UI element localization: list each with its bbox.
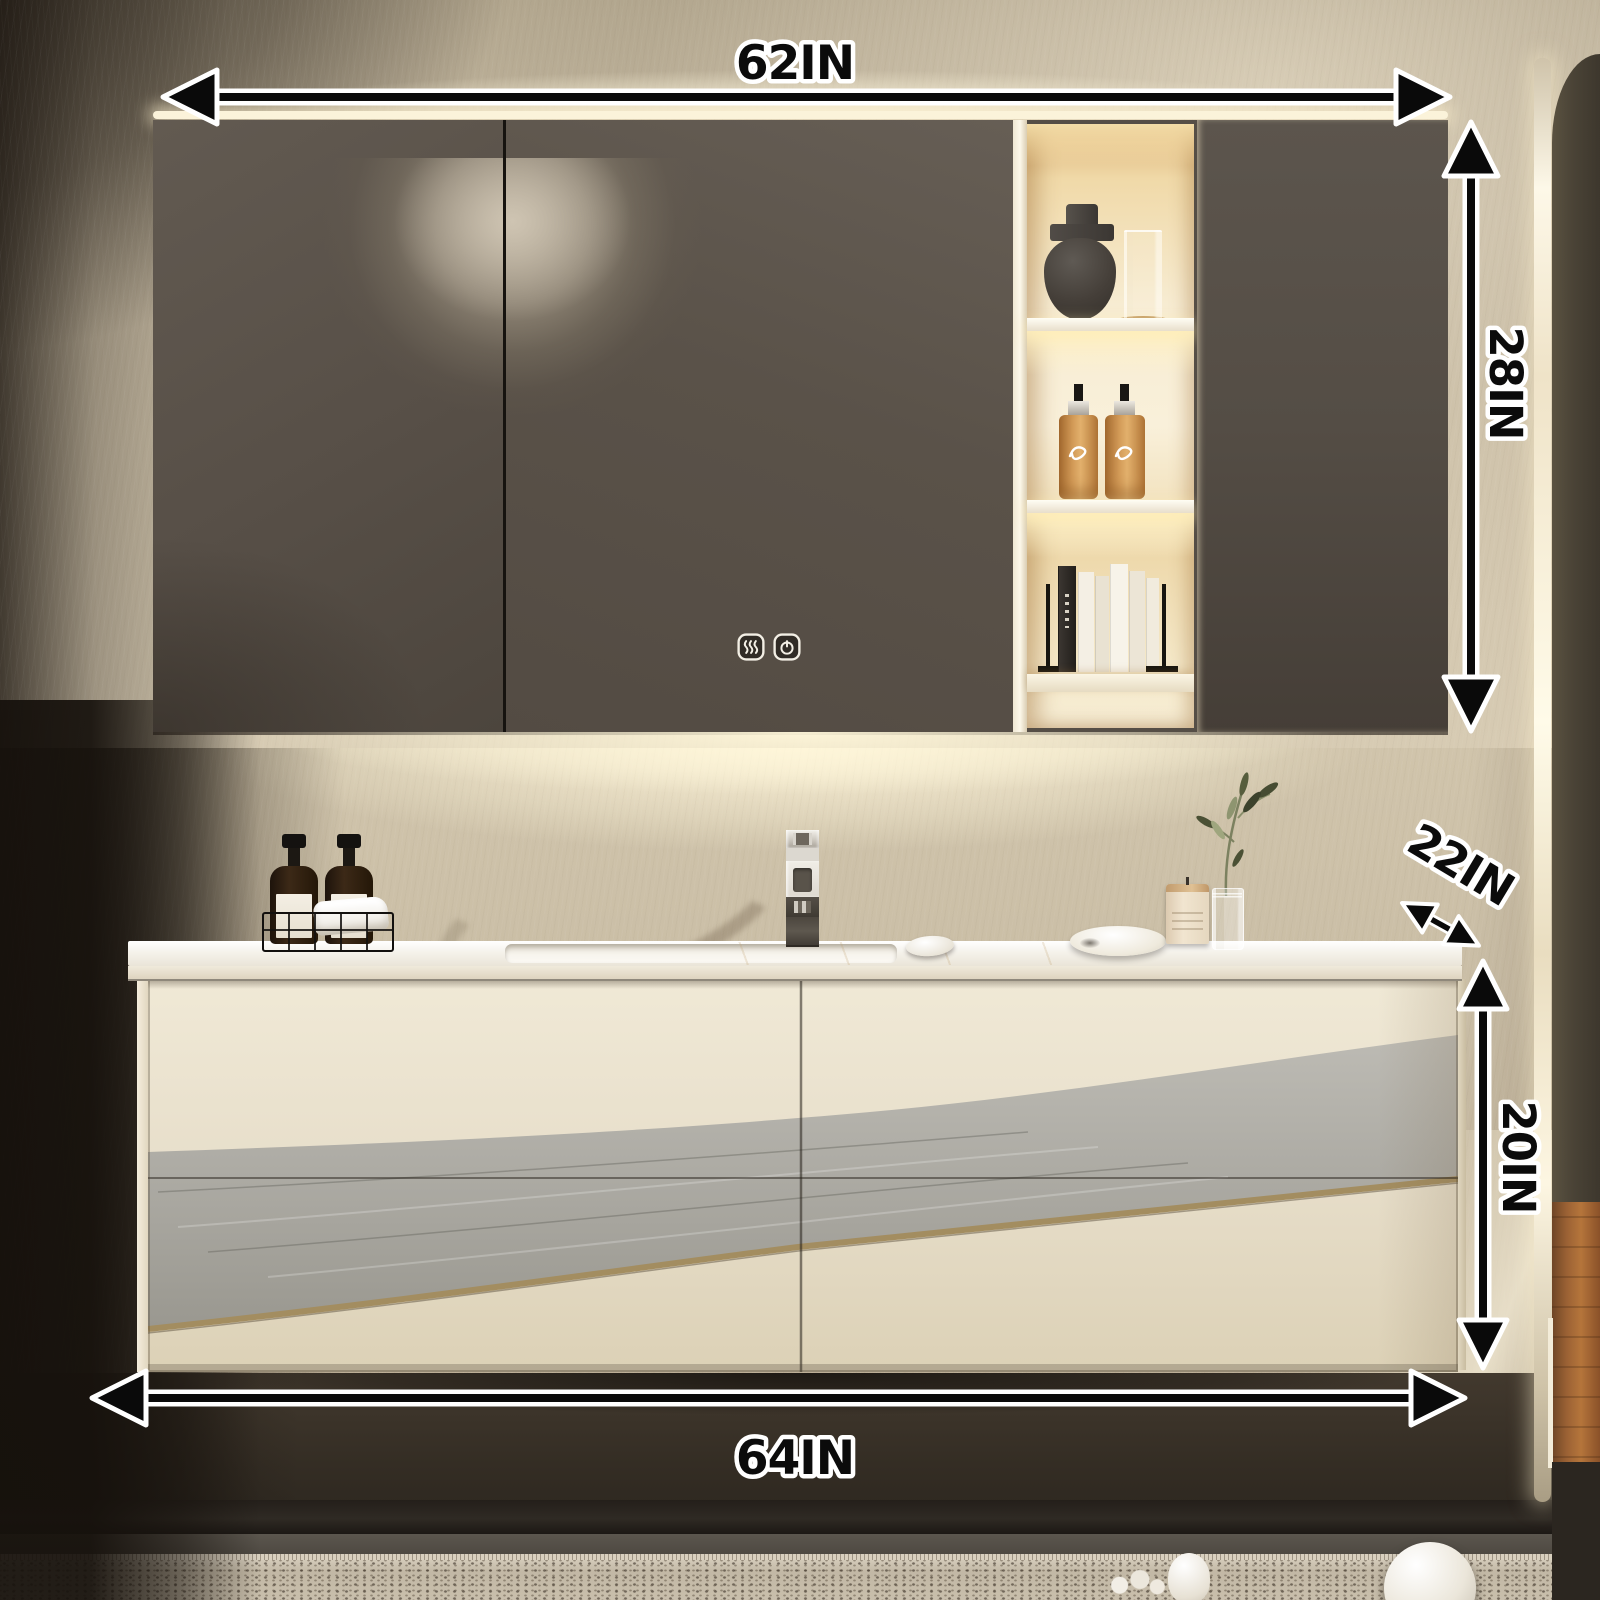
book (1110, 564, 1128, 672)
soap-dispenser-pump (337, 834, 361, 848)
book (1129, 571, 1145, 672)
dish-shadow (1080, 938, 1100, 948)
book (1095, 576, 1109, 672)
amber-bottle-collar (1068, 401, 1089, 416)
niche-shelf-glow-2 (1027, 513, 1194, 557)
shelf-niche-frame (1013, 120, 1027, 732)
soap-dispenser-neck (288, 848, 300, 868)
bud-vase-ridges (1212, 893, 1242, 898)
bookend-right-base (1146, 666, 1178, 672)
mirror-cabinet (153, 120, 1448, 732)
niche-shelf-2 (1027, 500, 1194, 513)
vanity-cast-shadow (140, 1373, 1460, 1425)
vanity-cabinet (148, 977, 1458, 1372)
cabinet-door-right (1197, 120, 1448, 732)
soap-dispenser-pump (282, 834, 306, 848)
faucet-display (793, 868, 812, 892)
book (1078, 572, 1094, 672)
bottle-logo-icon (1065, 440, 1091, 466)
bookend-left (1046, 584, 1050, 672)
white-vase-decor (1168, 1553, 1210, 1600)
power-icon (773, 633, 801, 661)
amber-bottle-pump (1120, 384, 1129, 402)
dark-door-panel (1552, 54, 1600, 1202)
amber-bottle-collar (1114, 401, 1135, 416)
faucet-aerator (793, 833, 812, 845)
bathroom-vanity-product-photo: 62IN 28IN 22IN 20IN 64IN (0, 0, 1600, 1600)
mirror-touch-controls (737, 633, 801, 661)
soap-dispenser-neck (343, 848, 355, 868)
niche-base-shelf (1027, 674, 1194, 692)
cabinet-led-strip (153, 111, 1448, 119)
mirror-door-seam (503, 120, 506, 732)
faucet-body (786, 848, 819, 861)
wire-caddy (262, 912, 394, 952)
glass-tumbler (1124, 230, 1162, 320)
faucet-base (786, 917, 819, 947)
marble-veins (700, 942, 1060, 965)
olive-sprig (1168, 768, 1288, 898)
niche-top-glow (1027, 124, 1194, 166)
right-floor-shadow (1552, 1462, 1600, 1600)
door-edge-light (1534, 58, 1551, 1502)
wood-grain (1552, 1202, 1600, 1466)
faucet-control-band (786, 897, 819, 917)
countertop-edge (128, 966, 1462, 981)
amber-bottle-pump (1074, 384, 1083, 402)
candle-label (1172, 912, 1203, 930)
coral-decor (1108, 1566, 1166, 1598)
bookend-right (1162, 584, 1166, 672)
bottle-logo-icon (1111, 440, 1137, 466)
defogger-icon (737, 633, 765, 661)
door-frame-edge (1548, 1318, 1553, 1468)
book (1146, 578, 1159, 672)
book-dark (1058, 566, 1076, 672)
cabinet-top-glow (140, 56, 1460, 118)
mirror-spotlight-reflection (295, 158, 730, 728)
niche-shelf-glow-1 (1027, 331, 1194, 375)
niche-shelf-1 (1027, 318, 1194, 331)
